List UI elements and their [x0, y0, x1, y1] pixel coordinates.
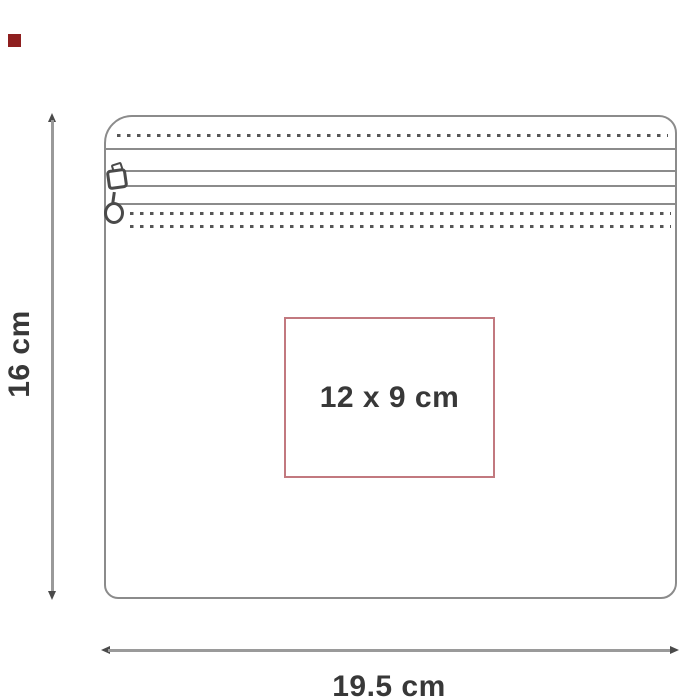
- product-dimension-diagram: 12 x 9 cm 16 cm 19.5 cm: [0, 0, 700, 700]
- height-dimension-label: 16 cm: [0, 294, 40, 414]
- height-dimension-line: [51, 120, 54, 593]
- arrow-down-icon: [48, 591, 56, 600]
- stitch-line-lower-1: [130, 212, 671, 215]
- zipper-pull-ring-icon: [104, 202, 124, 224]
- width-dimension-line: [108, 649, 672, 652]
- seam-line-lower: [113, 203, 676, 205]
- width-dimension-label: 19.5 cm: [289, 667, 489, 700]
- zipper-slider-icon: [106, 168, 129, 191]
- zipper-line-bottom: [121, 185, 676, 187]
- stitch-line-top: [117, 134, 668, 137]
- seam-line-upper: [105, 148, 676, 150]
- arrow-right-icon: [670, 646, 679, 654]
- stitch-line-lower-2: [130, 225, 671, 228]
- color-swatch: [8, 34, 21, 47]
- print-area-box: 12 x 9 cm: [284, 317, 495, 478]
- zipper-line-top: [121, 170, 676, 172]
- print-area-label: 12 x 9 cm: [320, 381, 460, 415]
